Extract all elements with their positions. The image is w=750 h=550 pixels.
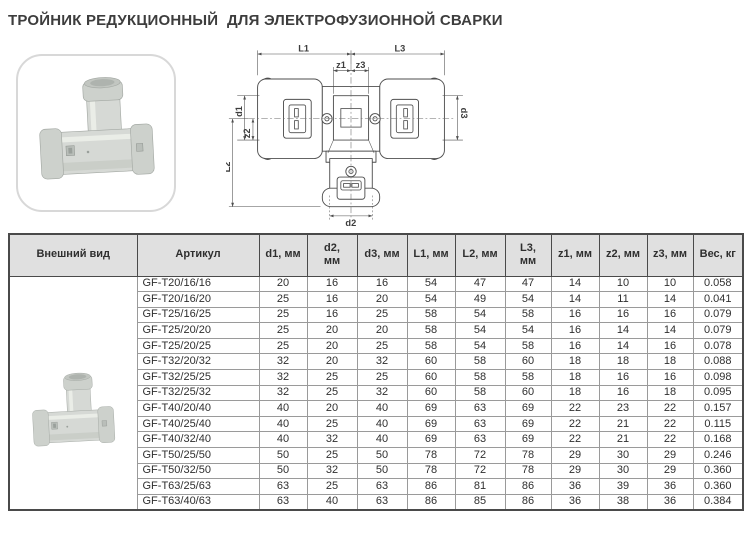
col-header-d3: d3, мм xyxy=(357,234,407,276)
value-cell: 16 xyxy=(551,307,599,323)
value-cell: 60 xyxy=(407,370,455,386)
col-header-z3: z3, мм xyxy=(647,234,693,276)
value-cell: 0.079 xyxy=(693,307,743,323)
value-cell: 58 xyxy=(407,323,455,339)
value-cell: 0.098 xyxy=(693,370,743,386)
value-cell: 21 xyxy=(599,416,647,432)
value-cell: 18 xyxy=(551,370,599,386)
value-cell: 0.384 xyxy=(693,494,743,510)
article-cell: GF-T25/20/25 xyxy=(137,338,259,354)
value-cell: 25 xyxy=(307,416,357,432)
value-cell: 40 xyxy=(307,494,357,510)
value-cell: 63 xyxy=(357,479,407,495)
value-cell: 40 xyxy=(357,401,407,417)
value-cell: 20 xyxy=(307,401,357,417)
value-cell: 0.168 xyxy=(693,432,743,448)
article-cell: GF-T32/25/25 xyxy=(137,370,259,386)
value-cell: 20 xyxy=(259,276,307,292)
table-row: GF-T20/16/162016165447471410100.058 xyxy=(9,276,743,292)
value-cell: 0.088 xyxy=(693,354,743,370)
value-cell: 32 xyxy=(357,354,407,370)
value-cell: 60 xyxy=(505,354,551,370)
tee-fitting-thumbnail xyxy=(27,367,119,459)
col-header-z2: z2, мм xyxy=(599,234,647,276)
value-cell: 38 xyxy=(599,494,647,510)
product-thumbnail-cell xyxy=(9,276,137,510)
catalog-page: ТРОЙНИК РЕДУКЦИОННЫЙ ДЛЯ ЭЛЕКТРОФУЗИОННО… xyxy=(0,0,750,550)
value-cell: 50 xyxy=(357,448,407,464)
article-cell: GF-T25/16/25 xyxy=(137,307,259,323)
dim-label-z3: z3 xyxy=(356,60,366,70)
value-cell: 14 xyxy=(647,292,693,308)
value-cell: 0.157 xyxy=(693,401,743,417)
value-cell: 25 xyxy=(307,370,357,386)
value-cell: 85 xyxy=(455,494,505,510)
value-cell: 25 xyxy=(259,292,307,308)
value-cell: 69 xyxy=(407,401,455,417)
value-cell: 30 xyxy=(599,463,647,479)
value-cell: 25 xyxy=(357,370,407,386)
value-cell: 22 xyxy=(647,401,693,417)
value-cell: 0.078 xyxy=(693,338,743,354)
dim-label-l2: L2 xyxy=(226,162,232,173)
col-header-L3: L3, мм xyxy=(505,234,551,276)
value-cell: 39 xyxy=(599,479,647,495)
value-cell: 58 xyxy=(505,338,551,354)
article-cell: GF-T40/25/40 xyxy=(137,416,259,432)
value-cell: 0.246 xyxy=(693,448,743,464)
value-cell: 40 xyxy=(259,401,307,417)
value-cell: 58 xyxy=(455,370,505,386)
value-cell: 16 xyxy=(599,385,647,401)
value-cell: 18 xyxy=(647,385,693,401)
value-cell: 54 xyxy=(407,276,455,292)
value-cell: 32 xyxy=(259,385,307,401)
value-cell: 36 xyxy=(551,479,599,495)
value-cell: 32 xyxy=(259,354,307,370)
value-cell: 14 xyxy=(551,276,599,292)
value-cell: 50 xyxy=(259,463,307,479)
value-cell: 36 xyxy=(551,494,599,510)
value-cell: 86 xyxy=(407,479,455,495)
tee-fitting-photo xyxy=(32,69,160,197)
value-cell: 32 xyxy=(307,463,357,479)
value-cell: 25 xyxy=(357,307,407,323)
value-cell: 78 xyxy=(505,448,551,464)
value-cell: 72 xyxy=(455,463,505,479)
value-cell: 63 xyxy=(259,494,307,510)
value-cell: 58 xyxy=(455,354,505,370)
value-cell: 54 xyxy=(505,323,551,339)
value-cell: 22 xyxy=(551,416,599,432)
value-cell: 22 xyxy=(647,416,693,432)
value-cell: 63 xyxy=(259,479,307,495)
value-cell: 78 xyxy=(505,463,551,479)
dim-label-d3: d3 xyxy=(459,108,469,119)
value-cell: 25 xyxy=(307,448,357,464)
value-cell: 20 xyxy=(307,338,357,354)
value-cell: 14 xyxy=(599,323,647,339)
value-cell: 25 xyxy=(307,385,357,401)
value-cell: 22 xyxy=(551,432,599,448)
value-cell: 20 xyxy=(307,323,357,339)
value-cell: 29 xyxy=(551,463,599,479)
value-cell: 58 xyxy=(407,338,455,354)
value-cell: 40 xyxy=(357,432,407,448)
value-cell: 20 xyxy=(307,354,357,370)
value-cell: 69 xyxy=(505,432,551,448)
article-cell: GF-T40/32/40 xyxy=(137,432,259,448)
value-cell: 49 xyxy=(455,292,505,308)
value-cell: 16 xyxy=(647,307,693,323)
value-cell: 32 xyxy=(259,370,307,386)
value-cell: 16 xyxy=(551,338,599,354)
value-cell: 0.115 xyxy=(693,416,743,432)
dim-label-d1: d1 xyxy=(234,106,244,117)
value-cell: 54 xyxy=(455,323,505,339)
value-cell: 47 xyxy=(455,276,505,292)
dim-label-z2: z2 xyxy=(242,128,252,138)
value-cell: 50 xyxy=(357,463,407,479)
value-cell: 14 xyxy=(647,323,693,339)
col-header-L2: L2, мм xyxy=(455,234,505,276)
product-photo-card xyxy=(16,54,176,212)
value-cell: 86 xyxy=(505,479,551,495)
value-cell: 58 xyxy=(505,370,551,386)
value-cell: 29 xyxy=(647,448,693,464)
value-cell: 54 xyxy=(407,292,455,308)
value-cell: 25 xyxy=(259,323,307,339)
value-cell: 22 xyxy=(647,432,693,448)
value-cell: 40 xyxy=(259,432,307,448)
value-cell: 0.095 xyxy=(693,385,743,401)
value-cell: 25 xyxy=(357,338,407,354)
value-cell: 58 xyxy=(455,385,505,401)
value-cell: 21 xyxy=(599,432,647,448)
spec-table: Внешний вид Артикул d1, мм d2, мм d3, мм… xyxy=(8,233,744,511)
article-cell: GF-T40/20/40 xyxy=(137,401,259,417)
value-cell: 18 xyxy=(599,354,647,370)
value-cell: 69 xyxy=(407,416,455,432)
value-cell: 60 xyxy=(505,385,551,401)
value-cell: 16 xyxy=(307,276,357,292)
value-cell: 0.041 xyxy=(693,292,743,308)
dim-label-z1: z1 xyxy=(336,60,346,70)
value-cell: 10 xyxy=(647,276,693,292)
header-row: Внешний вид Артикул d1, мм d2, мм d3, мм… xyxy=(9,234,743,276)
value-cell: 63 xyxy=(455,401,505,417)
value-cell: 22 xyxy=(551,401,599,417)
value-cell: 36 xyxy=(647,494,693,510)
dim-label-d2: d2 xyxy=(345,218,356,227)
article-cell: GF-T50/25/50 xyxy=(137,448,259,464)
col-header-z1: z1, мм xyxy=(551,234,599,276)
value-cell: 32 xyxy=(307,432,357,448)
value-cell: 86 xyxy=(407,494,455,510)
value-cell: 29 xyxy=(647,463,693,479)
article-cell: GF-T63/40/63 xyxy=(137,494,259,510)
col-header-weight: Вес, кг xyxy=(693,234,743,276)
value-cell: 54 xyxy=(455,338,505,354)
value-cell: 16 xyxy=(307,292,357,308)
value-cell: 0.058 xyxy=(693,276,743,292)
col-header-L1: L1, мм xyxy=(407,234,455,276)
value-cell: 54 xyxy=(455,307,505,323)
value-cell: 23 xyxy=(599,401,647,417)
value-cell: 16 xyxy=(357,276,407,292)
table-body: GF-T20/16/162016165447471410100.058GF-T2… xyxy=(9,276,743,510)
value-cell: 11 xyxy=(599,292,647,308)
dim-label-l1: L1 xyxy=(298,43,309,53)
value-cell: 16 xyxy=(599,307,647,323)
article-cell: GF-T20/16/16 xyxy=(137,276,259,292)
value-cell: 18 xyxy=(647,354,693,370)
value-cell: 18 xyxy=(551,354,599,370)
value-cell: 86 xyxy=(505,494,551,510)
value-cell: 16 xyxy=(551,323,599,339)
article-cell: GF-T50/32/50 xyxy=(137,463,259,479)
value-cell: 81 xyxy=(455,479,505,495)
value-cell: 47 xyxy=(505,276,551,292)
value-cell: 69 xyxy=(505,401,551,417)
value-cell: 18 xyxy=(551,385,599,401)
value-cell: 25 xyxy=(259,338,307,354)
value-cell: 78 xyxy=(407,463,455,479)
value-cell: 14 xyxy=(551,292,599,308)
article-cell: GF-T63/25/63 xyxy=(137,479,259,495)
value-cell: 30 xyxy=(599,448,647,464)
value-cell: 10 xyxy=(599,276,647,292)
article-cell: GF-T25/20/20 xyxy=(137,323,259,339)
value-cell: 32 xyxy=(357,385,407,401)
value-cell: 25 xyxy=(259,307,307,323)
value-cell: 60 xyxy=(407,354,455,370)
value-cell: 16 xyxy=(599,370,647,386)
article-cell: GF-T32/20/32 xyxy=(137,354,259,370)
value-cell: 58 xyxy=(407,307,455,323)
value-cell: 54 xyxy=(505,292,551,308)
value-cell: 40 xyxy=(357,416,407,432)
dim-label-l3: L3 xyxy=(394,43,405,53)
value-cell: 40 xyxy=(259,416,307,432)
value-cell: 25 xyxy=(307,479,357,495)
value-cell: 20 xyxy=(357,323,407,339)
value-cell: 69 xyxy=(407,432,455,448)
value-cell: 0.079 xyxy=(693,323,743,339)
value-cell: 63 xyxy=(455,432,505,448)
col-header-d1: d1, мм xyxy=(259,234,307,276)
technical-drawing: L1 L3 z1 z3 d1 z2 L2 d3 d2 xyxy=(226,42,476,227)
value-cell: 63 xyxy=(455,416,505,432)
value-cell: 29 xyxy=(551,448,599,464)
value-cell: 58 xyxy=(505,307,551,323)
value-cell: 36 xyxy=(647,479,693,495)
value-cell: 14 xyxy=(599,338,647,354)
value-cell: 16 xyxy=(307,307,357,323)
value-cell: 72 xyxy=(455,448,505,464)
value-cell: 69 xyxy=(505,416,551,432)
page-title: ТРОЙНИК РЕДУКЦИОННЫЙ ДЛЯ ЭЛЕКТРОФУЗИОННО… xyxy=(8,12,503,29)
value-cell: 0.360 xyxy=(693,463,743,479)
value-cell: 63 xyxy=(357,494,407,510)
value-cell: 0.360 xyxy=(693,479,743,495)
col-header-d2: d2, мм xyxy=(307,234,357,276)
value-cell: 16 xyxy=(647,338,693,354)
value-cell: 20 xyxy=(357,292,407,308)
value-cell: 78 xyxy=(407,448,455,464)
col-header-appearance: Внешний вид xyxy=(9,234,137,276)
article-cell: GF-T20/16/20 xyxy=(137,292,259,308)
article-cell: GF-T32/25/32 xyxy=(137,385,259,401)
value-cell: 16 xyxy=(647,370,693,386)
value-cell: 50 xyxy=(259,448,307,464)
value-cell: 60 xyxy=(407,385,455,401)
col-header-article: Артикул xyxy=(137,234,259,276)
